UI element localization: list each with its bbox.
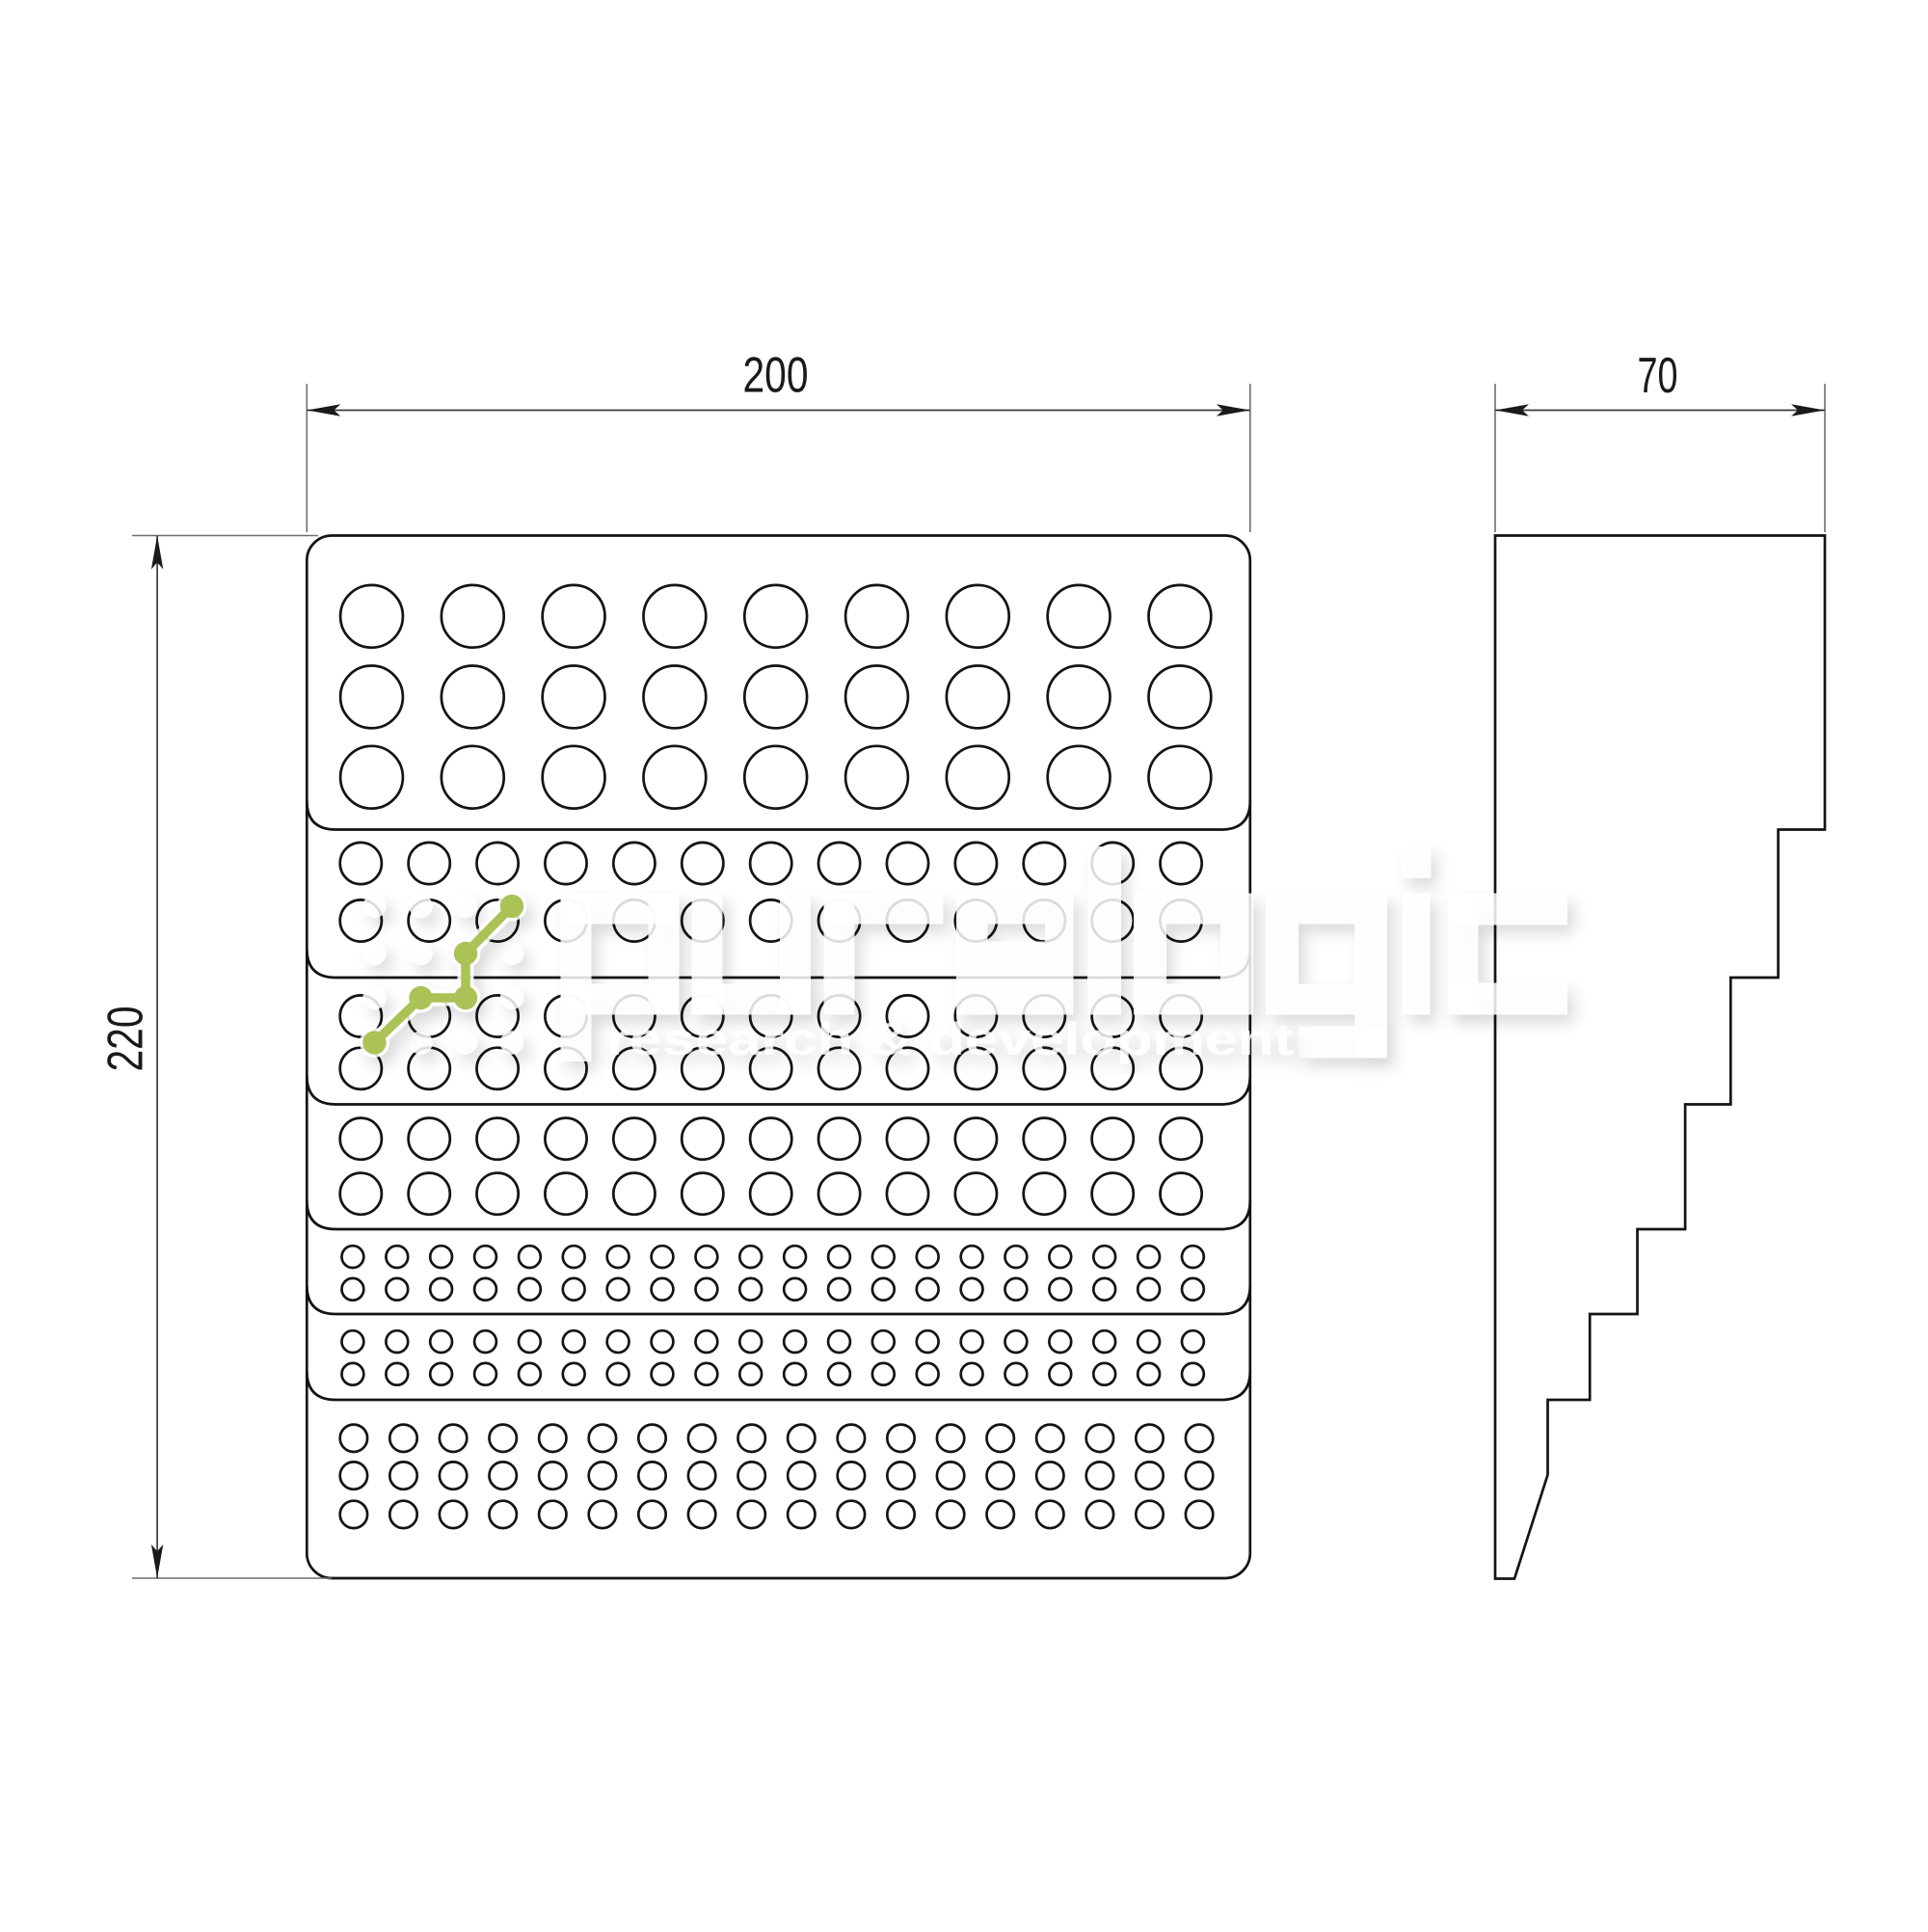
svg-text:200: 200 xyxy=(743,348,809,404)
svg-text:70: 70 xyxy=(1638,348,1678,404)
svg-text:220: 220 xyxy=(98,1006,154,1072)
svg-text:research & development: research & development xyxy=(606,1013,1294,1064)
